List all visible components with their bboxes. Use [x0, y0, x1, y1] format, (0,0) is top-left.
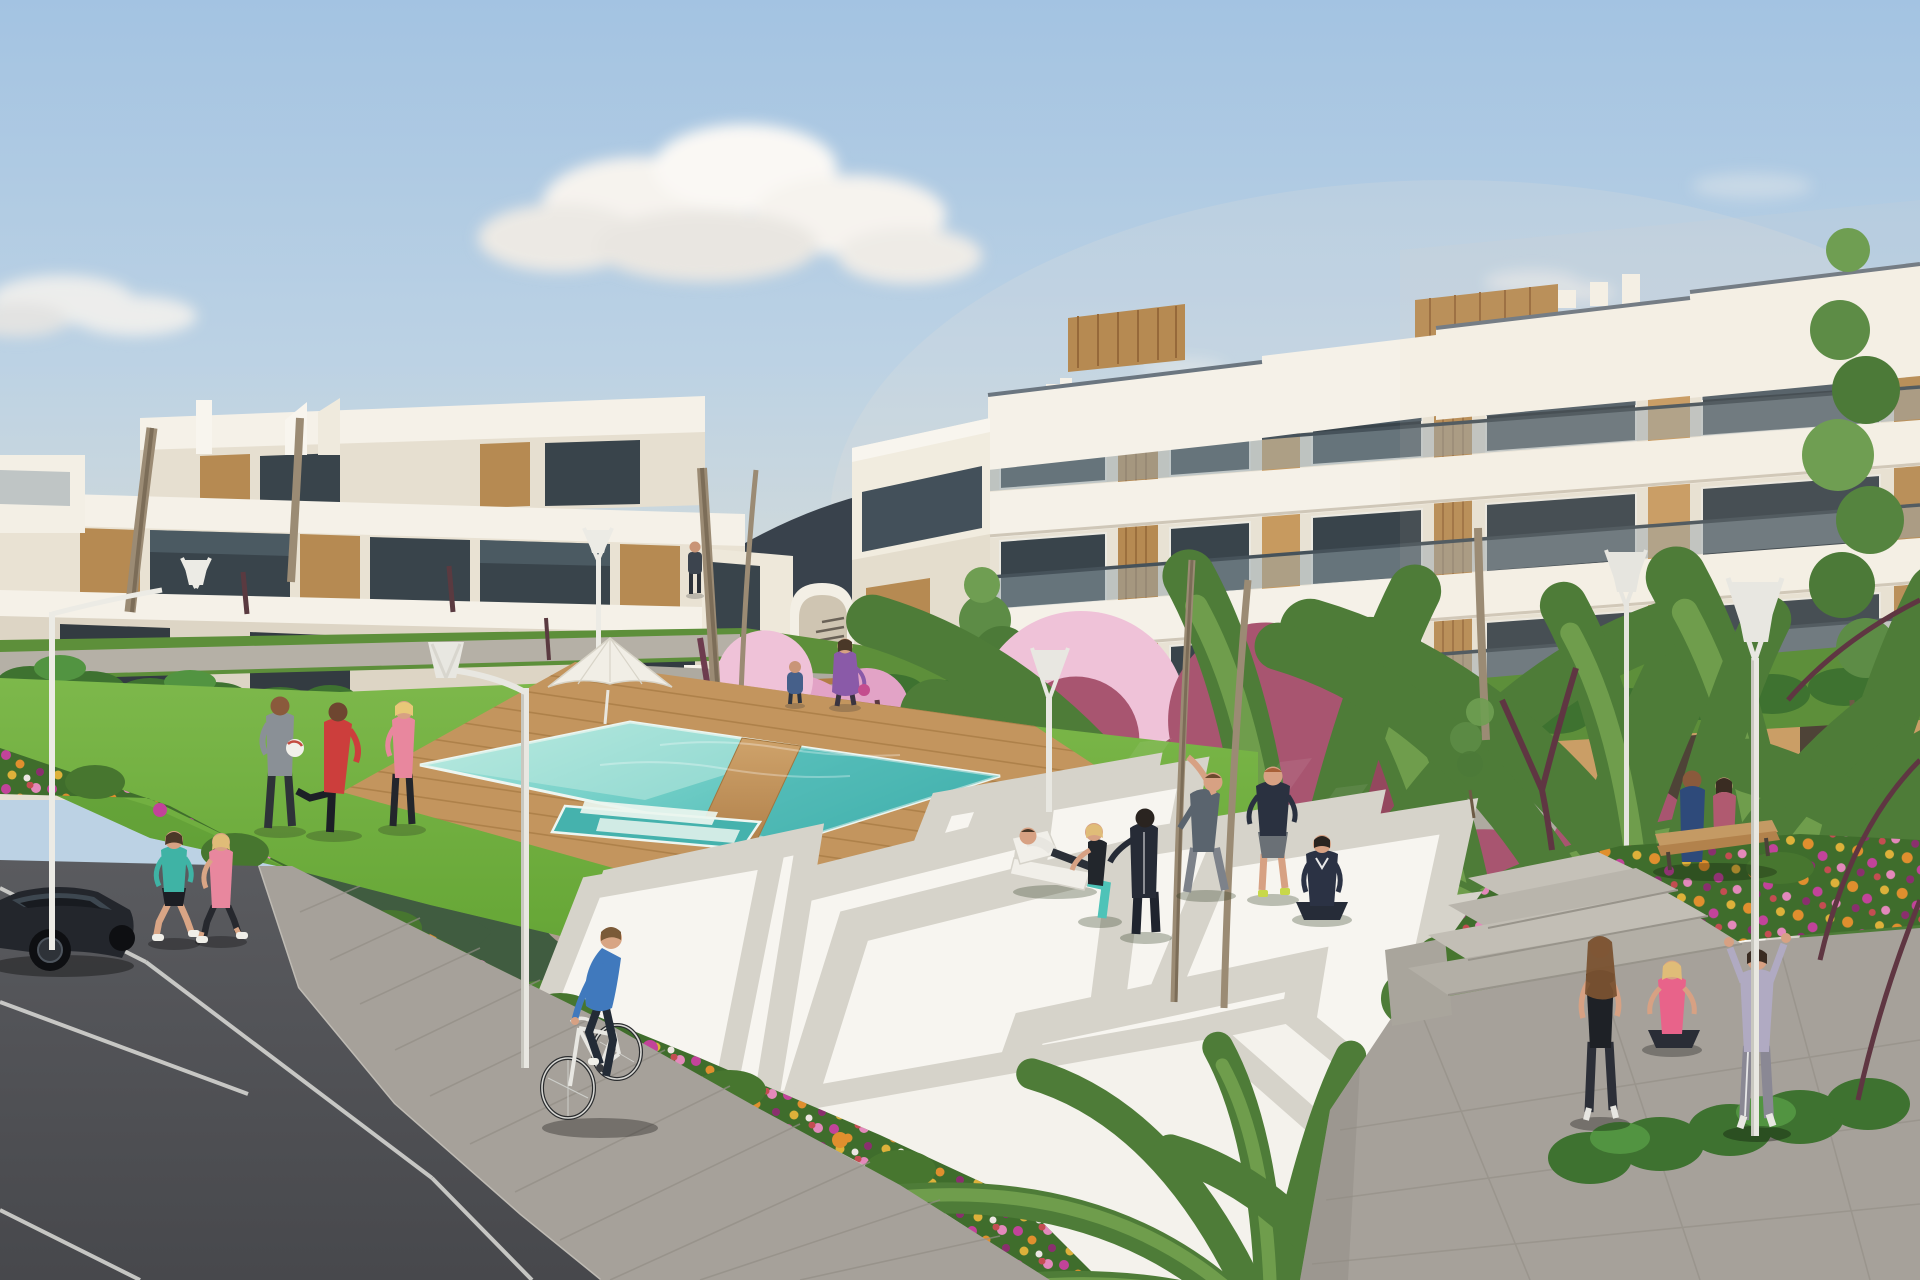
render-canvas	[0, 0, 1920, 1280]
